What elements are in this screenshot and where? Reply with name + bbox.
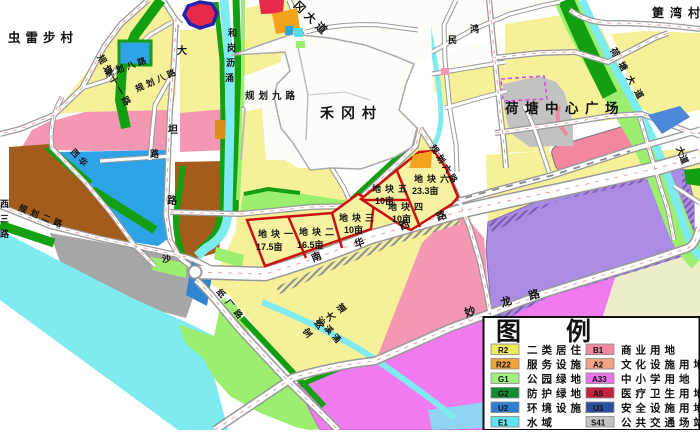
svg-text:A5: A5 [593, 390, 604, 399]
svg-text:和: 和 [227, 27, 237, 38]
svg-text:G1: G1 [498, 375, 509, 384]
svg-text:荷塘中心广场: 荷塘中心广场 [504, 100, 625, 116]
svg-text:U2: U2 [498, 404, 509, 413]
svg-text:S41: S41 [591, 419, 606, 428]
svg-text:图例: 图例 [496, 318, 636, 346]
svg-text:17.5亩: 17.5亩 [256, 241, 283, 252]
svg-text:筻湾村: 筻湾村 [651, 5, 700, 20]
svg-text:地块六: 地块六 [414, 173, 453, 184]
svg-text:涌: 涌 [225, 72, 234, 83]
svg-text:路: 路 [150, 148, 160, 159]
svg-text:地块五: 地块五 [372, 183, 411, 194]
svg-text:地块二: 地块二 [299, 226, 338, 237]
svg-text:规划九路: 规划九路 [245, 90, 299, 102]
svg-text:R2: R2 [498, 346, 509, 355]
svg-text:23.3亩: 23.3亩 [412, 185, 439, 196]
svg-text:虫雷步村: 虫雷步村 [8, 30, 78, 45]
svg-text:沥: 沥 [226, 57, 235, 68]
svg-text:民: 民 [448, 35, 457, 45]
svg-text:三: 三 [0, 214, 9, 224]
svg-text:中小学用地: 中小学用地 [621, 373, 694, 386]
svg-text:沙: 沙 [162, 254, 171, 264]
svg-text:G2: G2 [498, 390, 509, 399]
svg-text:公共交通场站用地: 公共交通场站用地 [621, 416, 700, 429]
svg-text:地块四: 地块四 [388, 201, 427, 212]
svg-text:16.5亩: 16.5亩 [297, 239, 324, 250]
svg-text:A33: A33 [592, 375, 607, 384]
svg-text:路: 路 [167, 194, 178, 207]
svg-text:B1: B1 [593, 346, 604, 355]
svg-text:A2: A2 [593, 361, 604, 370]
svg-text:禾冈村: 禾冈村 [320, 105, 383, 121]
svg-text:医疗卫生用地: 医疗卫生用地 [621, 387, 700, 400]
svg-text:安全设施用地: 安全设施用地 [621, 402, 700, 415]
svg-text:水域: 水域 [526, 416, 556, 429]
svg-text:公园绿地: 公园绿地 [527, 373, 585, 386]
svg-text:大: 大 [177, 44, 187, 57]
svg-text:10亩: 10亩 [344, 224, 363, 235]
svg-text:坦: 坦 [168, 123, 178, 136]
svg-text:岗: 岗 [227, 42, 236, 53]
svg-text:R22: R22 [496, 361, 511, 370]
svg-text:鸿: 鸿 [470, 23, 479, 34]
svg-text:防护绿地: 防护绿地 [527, 387, 585, 400]
svg-text:地块一: 地块一 [258, 228, 297, 239]
svg-text:西: 西 [0, 199, 9, 209]
svg-text:E1: E1 [498, 419, 508, 428]
svg-text:地块三: 地块三 [339, 212, 378, 223]
svg-text:文化设施用地: 文化设施用地 [620, 358, 700, 371]
svg-text:商业用地: 商业用地 [621, 344, 679, 357]
svg-text:路: 路 [0, 228, 10, 239]
svg-text:U3: U3 [593, 404, 604, 413]
